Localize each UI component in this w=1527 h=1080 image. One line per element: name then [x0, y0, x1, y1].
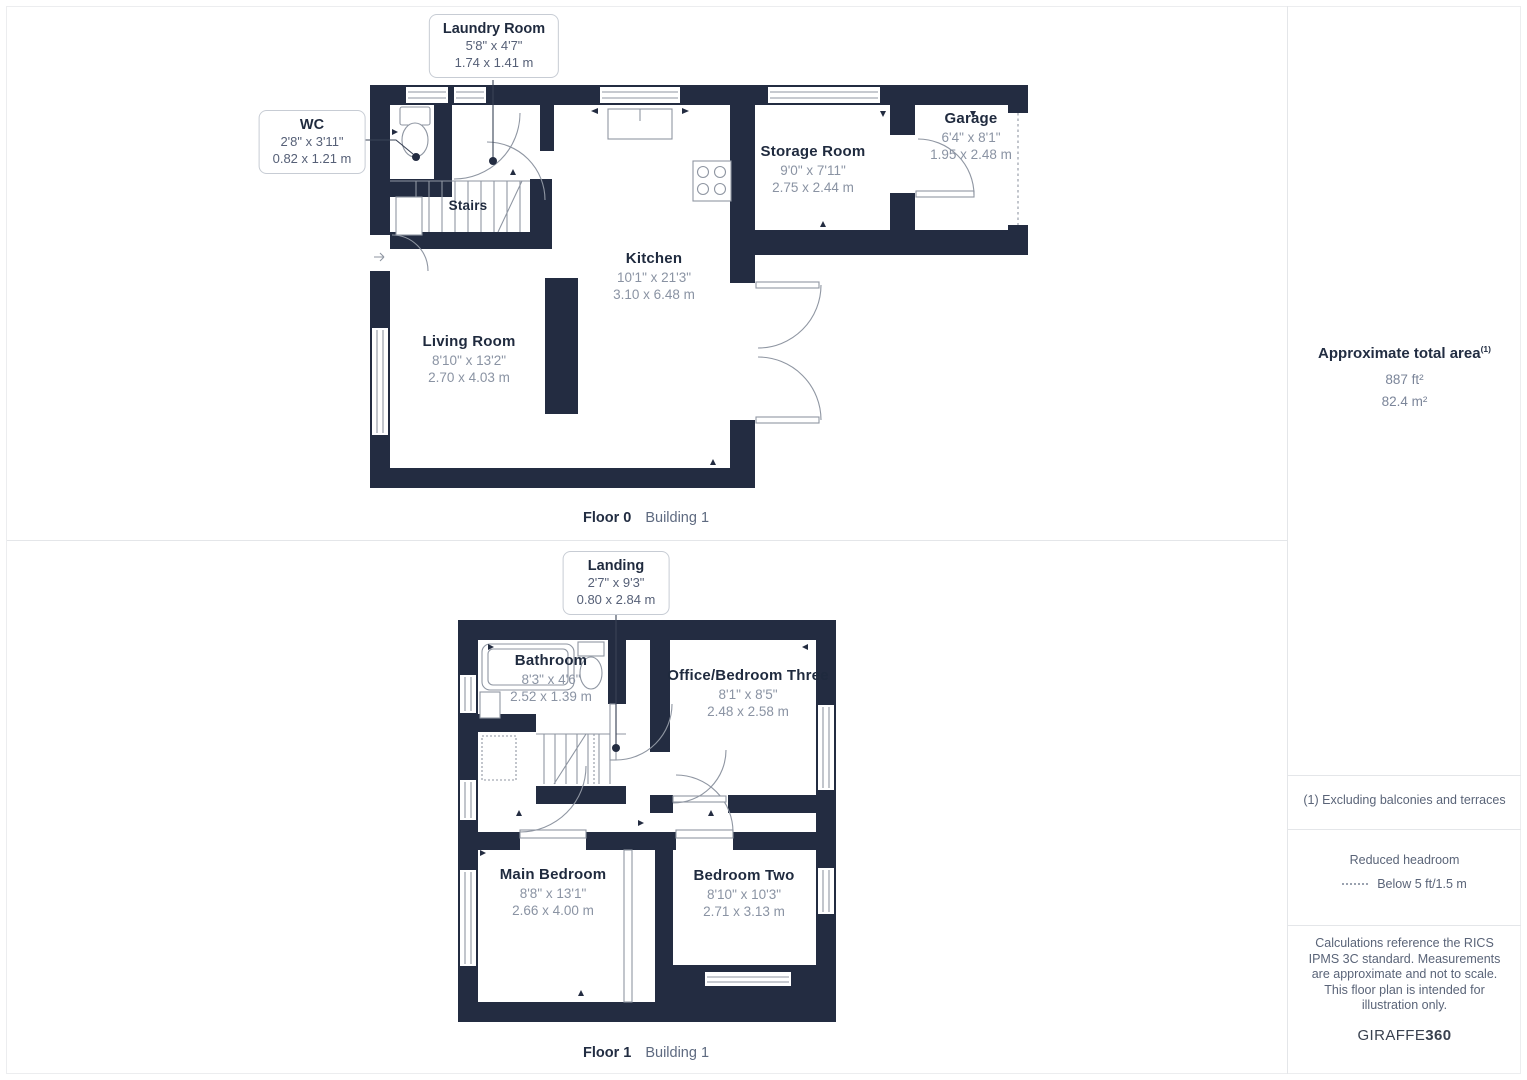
total-area-metric: 82.4 m²	[1288, 394, 1521, 409]
giraffe360-logo: GIRAFFE360	[1288, 1027, 1521, 1044]
kitchen-hob	[693, 161, 731, 201]
floorplan-page: { "colors": { "wall": "#232C41", "line":…	[0, 0, 1527, 1080]
floor0-caption: Floor 0Building 1	[583, 510, 709, 526]
closet-dotted-outline	[482, 736, 516, 780]
room-label-office-bedroom-three: Office/Bedroom Three 8'1" x 8'5" 2.48 x …	[667, 667, 829, 720]
callout-laundry-room: Laundry Room 5'8" x 4'7" 1.74 x 1.41 m	[429, 14, 559, 78]
area-footnote: (1) Excluding balconies and terraces	[1288, 793, 1521, 807]
dotted-line-icon	[1342, 883, 1368, 885]
room-label-garage: Garage 6'4" x 8'1" 1.95 x 2.48 m	[930, 110, 1012, 163]
disclaimer-text: Calculations reference the RICS IPMS 3C …	[1303, 936, 1506, 1014]
footnote-marker: (1)	[1481, 344, 1491, 354]
sidebar-section-divider	[1288, 775, 1521, 776]
floor-section-divider	[7, 540, 1287, 541]
wc-toilet	[402, 123, 428, 157]
sidebar-section-divider	[1288, 829, 1521, 830]
sidebar-divider	[1287, 6, 1288, 1074]
room-label-main-bedroom: Main Bedroom 8'8" x 13'1" 2.66 x 4.00 m	[500, 866, 607, 919]
total-area-title: Approximate total area(1)	[1288, 344, 1521, 362]
reduced-headroom-legend: Below 5 ft/1.5 m	[1288, 877, 1521, 891]
room-label-kitchen: Kitchen 10'1" x 21'3" 3.10 x 6.48 m	[613, 250, 695, 303]
room-label-storage-room: Storage Room 9'0" x 7'11" 2.75 x 2.44 m	[761, 143, 866, 196]
floor1-stairs	[482, 734, 626, 784]
wc-basin	[396, 197, 422, 235]
wc-cistern	[400, 107, 430, 125]
floor1-caption: Floor 1Building 1	[583, 1045, 709, 1061]
sidebar-section-divider	[1288, 925, 1521, 926]
floor1-doors	[520, 704, 733, 838]
bathroom-sink	[480, 692, 500, 718]
room-label-bathroom: Bathroom 8'3" x 4'6" 2.52 x 1.39 m	[510, 652, 592, 705]
callout-landing: Landing 2'7" x 9'3" 0.80 x 2.84 m	[563, 551, 670, 615]
total-area-imperial: 887 ft²	[1288, 372, 1521, 387]
callout-wc: WC 2'8" x 3'11" 0.82 x 1.21 m	[259, 110, 366, 174]
room-label-bedroom-two: Bedroom Two 8'10" x 10'3" 2.71 x 3.13 m	[693, 867, 794, 920]
room-label-living-room: Living Room 8'10" x 13'2" 2.70 x 4.03 m	[422, 333, 515, 386]
room-label-stairs: Stairs	[449, 198, 488, 215]
bedroom-partition-wall	[624, 850, 632, 1002]
reduced-headroom-label: Reduced headroom	[1288, 853, 1521, 867]
